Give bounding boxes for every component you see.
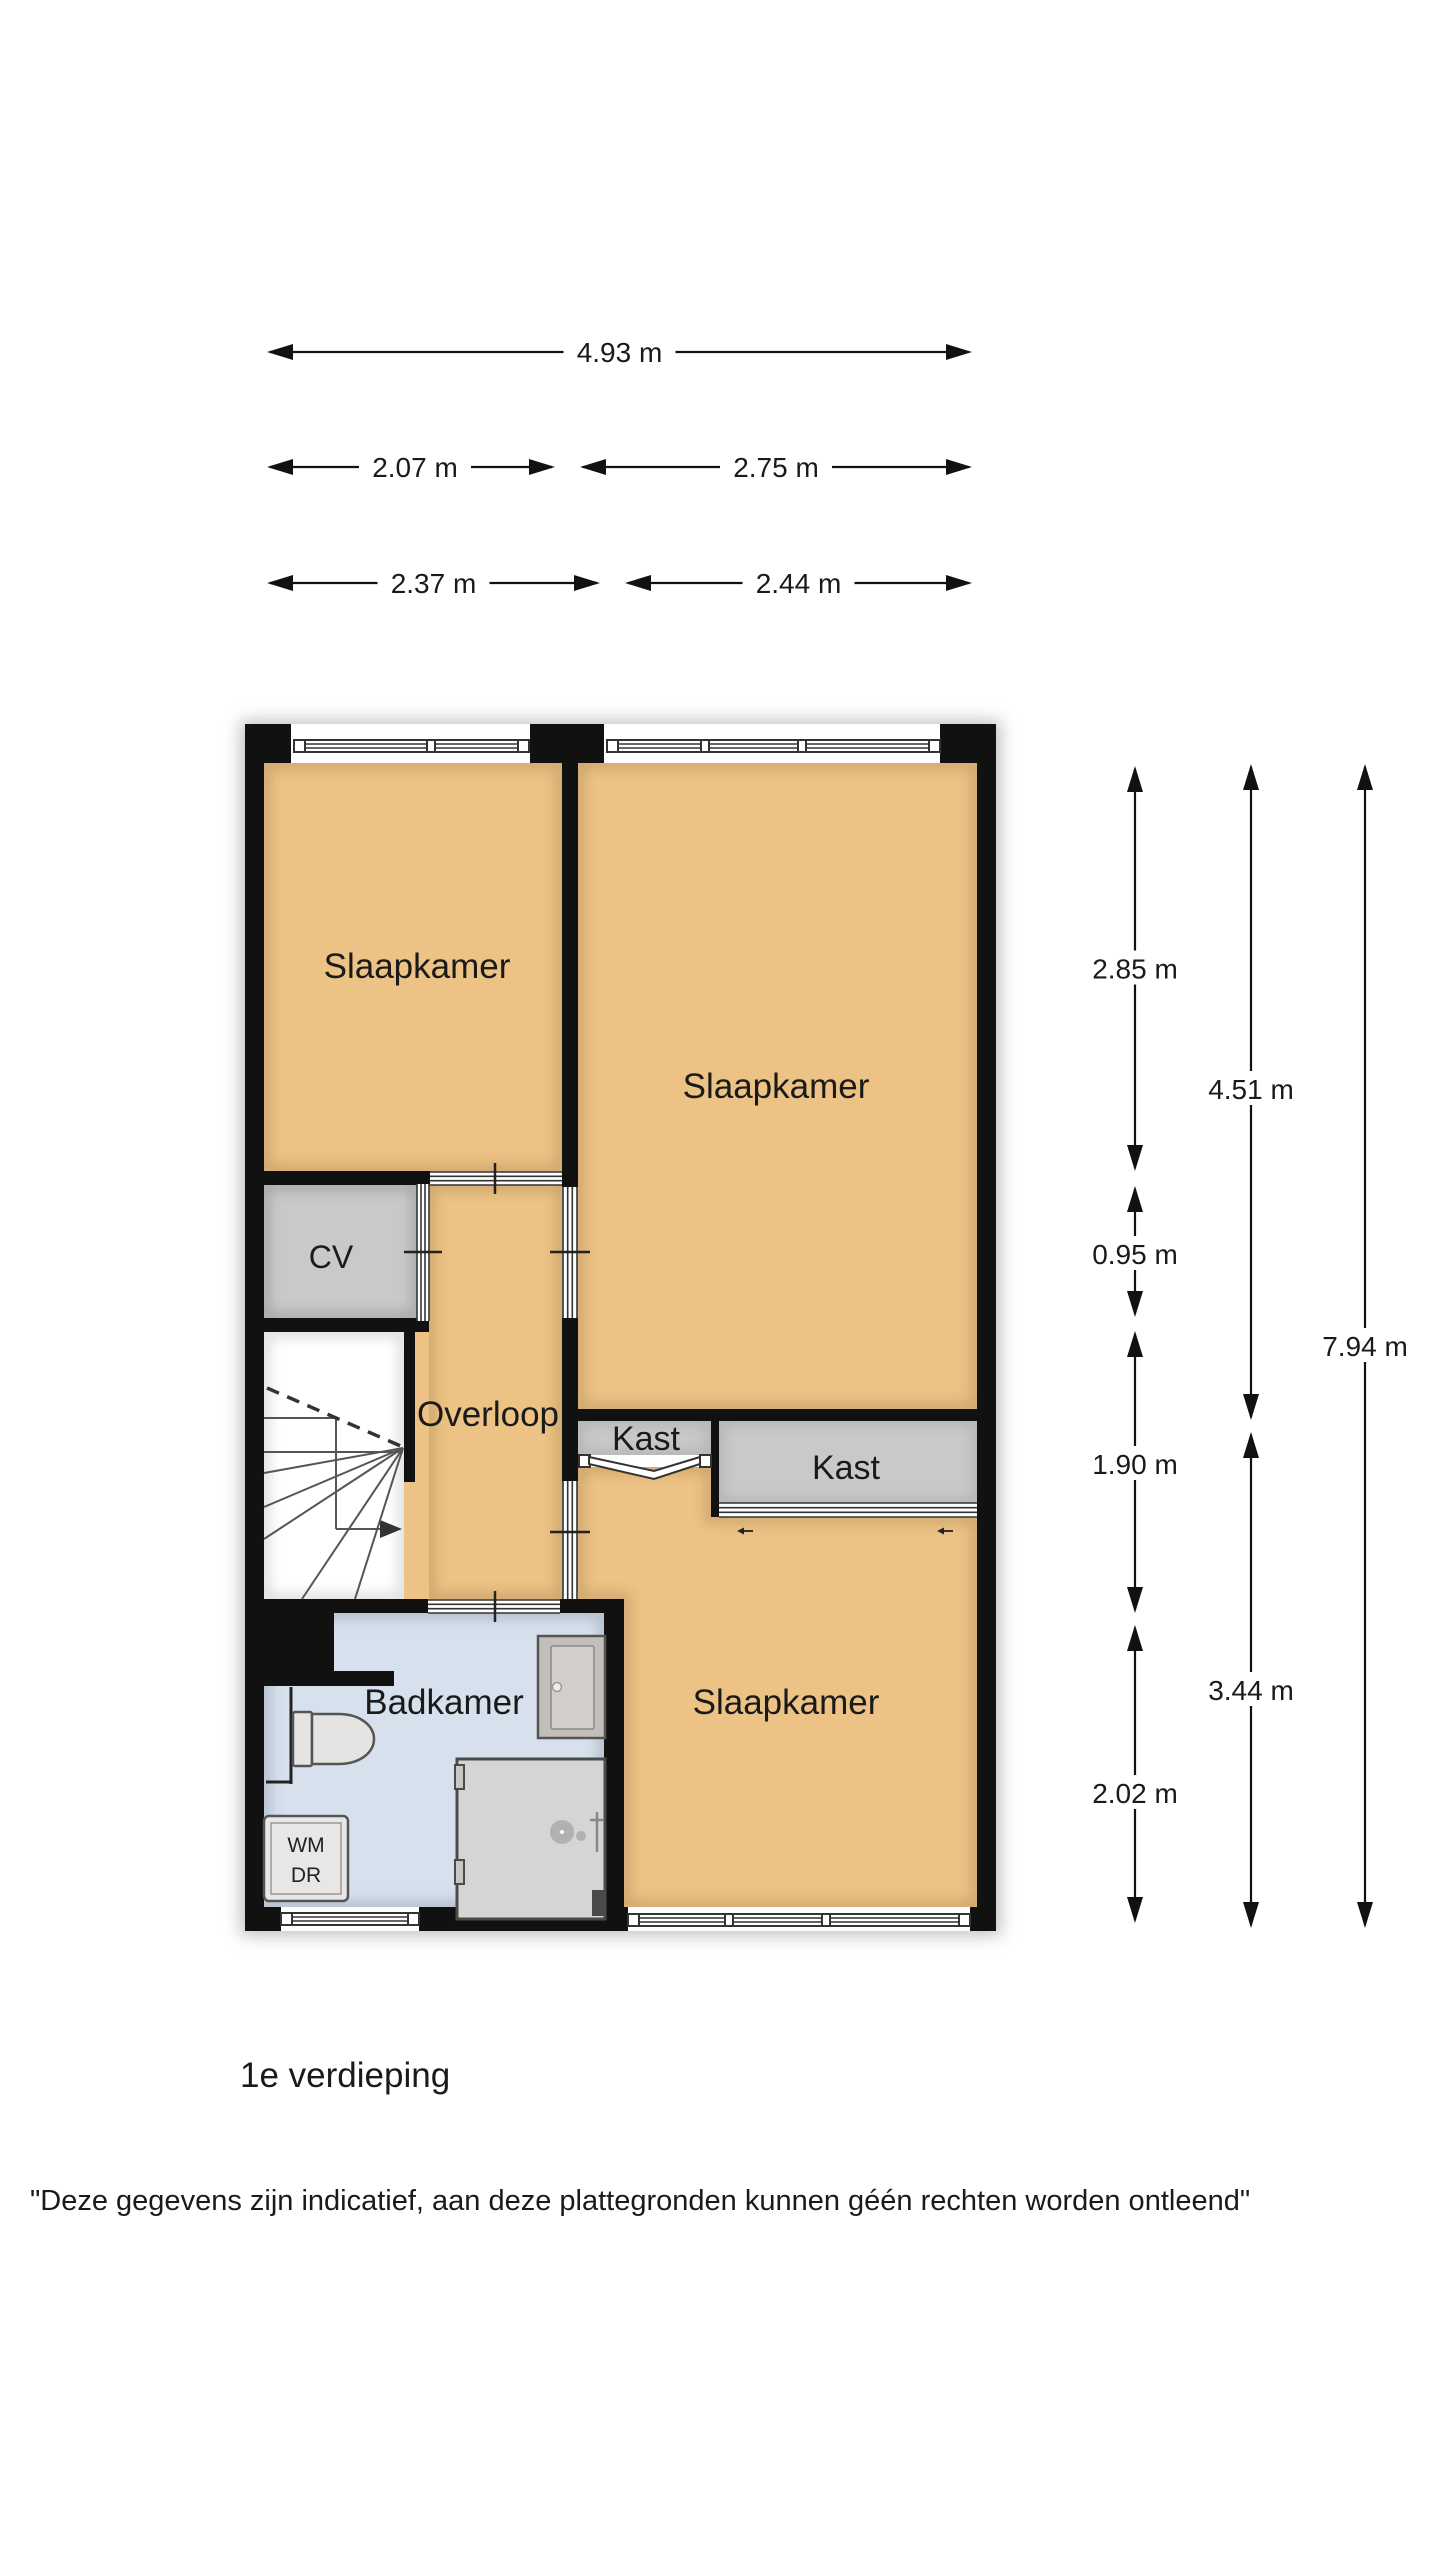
svg-text:Overloop: Overloop (417, 1395, 559, 1434)
svg-text:3.44 m: 3.44 m (1208, 1675, 1294, 1706)
svg-text:Badkamer: Badkamer (364, 1683, 524, 1722)
svg-text:2.07 m: 2.07 m (372, 452, 458, 483)
svg-text:Slaapkamer: Slaapkamer (693, 1683, 880, 1722)
svg-text:7.94 m: 7.94 m (1322, 1331, 1408, 1362)
svg-text:2.85 m: 2.85 m (1092, 954, 1178, 985)
svg-text:1.90 m: 1.90 m (1092, 1449, 1178, 1480)
svg-text:Slaapkamer: Slaapkamer (324, 947, 511, 986)
svg-text:Kast: Kast (612, 1420, 681, 1458)
svg-text:CV: CV (309, 1239, 354, 1275)
svg-text:2.75 m: 2.75 m (733, 452, 819, 483)
svg-text:2.44 m: 2.44 m (756, 568, 842, 599)
svg-text:Kast: Kast (812, 1449, 881, 1487)
svg-text:2.02 m: 2.02 m (1092, 1778, 1178, 1809)
svg-text:Slaapkamer: Slaapkamer (683, 1067, 870, 1106)
svg-text:4.51 m: 4.51 m (1208, 1074, 1294, 1105)
svg-text:"Deze gegevens zijn indicatief: "Deze gegevens zijn indicatief, aan deze… (30, 2185, 1250, 2217)
svg-text:WM: WM (287, 1834, 324, 1857)
svg-text:0.95 m: 0.95 m (1092, 1239, 1178, 1270)
svg-text:1e verdieping: 1e verdieping (240, 2056, 450, 2095)
svg-text:4.93 m: 4.93 m (577, 337, 663, 368)
svg-text:DR: DR (291, 1864, 321, 1887)
svg-text:2.37 m: 2.37 m (391, 568, 477, 599)
